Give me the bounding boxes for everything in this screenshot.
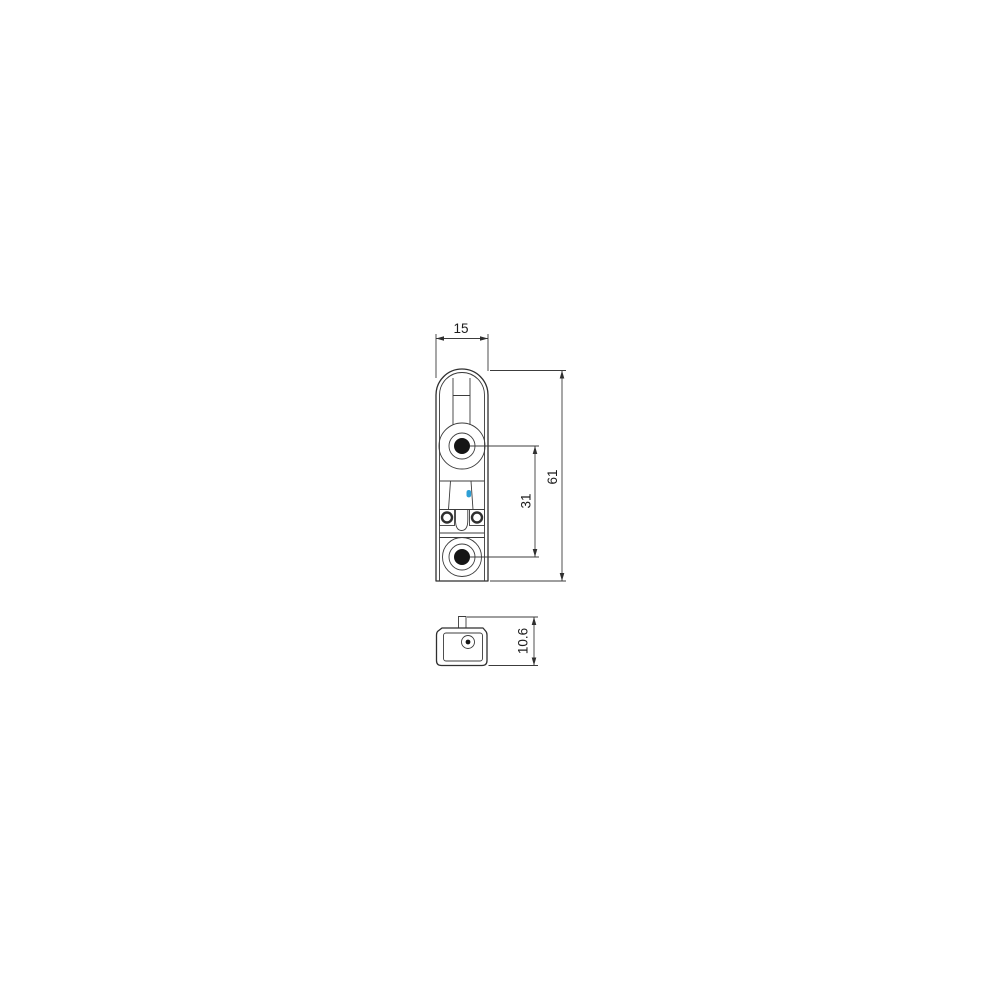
drawing-canvas: 15 61 31 10.6 <box>0 0 1000 1000</box>
dimension-hole-spacing-label: 31 <box>519 493 534 508</box>
dimension-hole-spacing: 31 <box>470 446 539 557</box>
front-view <box>436 369 488 581</box>
lower-hole <box>454 549 470 565</box>
dimension-depth: 10.6 <box>467 617 538 666</box>
roller-left <box>442 513 452 523</box>
screw-hole-center <box>466 640 471 645</box>
dimension-width-arrow-left <box>436 336 444 341</box>
bottom-view-tab <box>459 617 467 629</box>
dimension-width-label: 15 <box>453 321 468 336</box>
technical-drawing: 15 61 31 10.6 <box>0 0 1000 1000</box>
striker-cup <box>456 510 468 531</box>
dimension-height-label: 61 <box>545 469 560 484</box>
bottom-view <box>437 617 488 666</box>
upper-hole <box>454 438 470 454</box>
roller-right <box>472 513 482 523</box>
dimension-hole-spacing-arrow-bottom <box>533 549 538 557</box>
dimension-depth-arrow-top <box>532 617 537 625</box>
dimension-hole-spacing-arrow-top <box>533 446 538 454</box>
dimension-height: 61 <box>490 371 566 582</box>
dimension-height-arrow-bottom <box>560 573 565 581</box>
dimension-depth-label: 10.6 <box>516 628 531 654</box>
blue-marker-icon <box>467 490 472 497</box>
front-cap-inner-arc <box>440 373 485 396</box>
dimension-height-arrow-top <box>560 371 565 379</box>
dimension-depth-arrow-bottom <box>532 658 537 666</box>
tongue <box>453 378 470 425</box>
dimension-width-arrow-right <box>480 336 488 341</box>
